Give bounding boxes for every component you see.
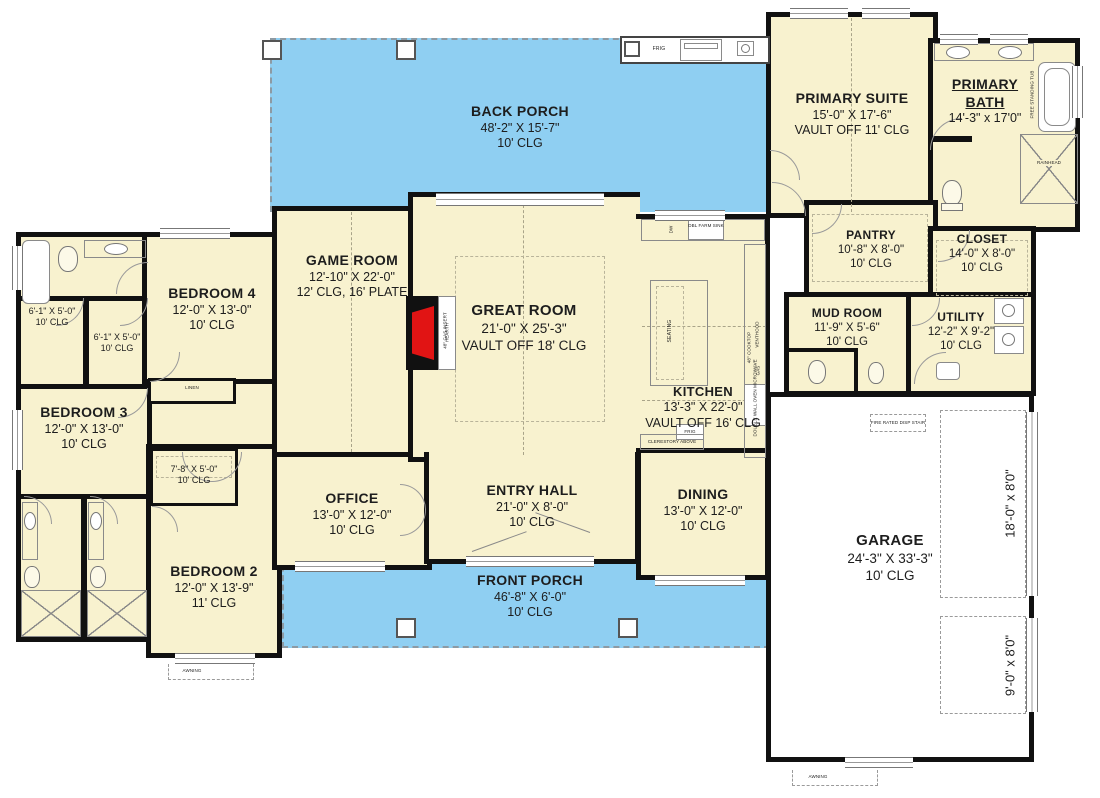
room-name: GARAGE [766,532,1014,551]
back-porch-label: BACK PORCH 48'-2" X 15'-7" 10' CLG [370,103,670,152]
garage-label: GARAGE 24'-3" X 33'-3" 10' CLG [766,532,1014,585]
cooktop-label: 48" COOKTOP [747,323,752,373]
garage-rear-door [845,757,913,768]
awning-label: AWNING [170,668,214,674]
clerestory-label: CLERESTORY ABOVE [640,439,704,445]
room-name: DINING [636,486,770,504]
office-label: OFFICE 13'-0" X 12'-0" 10' CLG [272,490,432,539]
room-name: GREAT ROOM [408,302,640,321]
room-name: UTILITY [900,310,1022,325]
window [295,561,385,572]
garage-door-9-label: 9'-0" x 8'0" [1003,611,1018,721]
shower [87,590,147,637]
window [790,8,848,19]
awning-label: AWNING [796,774,840,780]
window [160,228,230,239]
powder-wall [854,348,858,396]
porch-column-icon [624,41,640,57]
farm-sink-label: DBL FARM SINK [688,223,724,229]
window [175,653,255,664]
toilet-icon [24,566,40,588]
room-name: MUD ROOM [784,306,910,321]
disp-stair-label: FIRE RATED DISP STAIR [870,420,926,426]
rainhead-label: RAINHEAD [1024,160,1074,166]
garage-door-18 [1026,412,1038,596]
great-room-slider-window [436,193,604,206]
floor-plan: FRIG 48" GAS INSERT HEARTH D [0,0,1100,798]
room-name: PANTRY [804,228,938,243]
pantry-label: PANTRY 10'-8" X 8'-0" 10' CLG [804,228,938,272]
room-name: BEDROOM 3 [16,404,152,422]
primary-shower [1020,134,1078,204]
window [862,8,910,19]
toilet-icon [808,360,826,384]
room-name: OFFICE [272,490,432,508]
front-porch-label: FRONT PORCH 46'-8" X 6'-0" 10' CLG [380,572,680,621]
bath-sink-icon [998,46,1022,59]
room-name: BACK PORCH [370,103,670,121]
porch-column-icon [262,40,282,60]
venthood-label: VENTHOOD [755,314,760,356]
entry-hall-label: ENTRY HALL 21'-0" X 8'-0" 10' CLG [424,482,640,531]
room-linen-closet [148,378,236,404]
window [1072,66,1083,118]
bedroom-4-label: BEDROOM 4 12'-0" X 13'-0" 10' CLG [142,285,282,334]
porch-column-icon [396,40,416,60]
sink-icon [24,512,36,530]
porch-column-icon [396,618,416,638]
room-name: CLOSET [928,232,1036,247]
toilet-icon [868,362,884,384]
garage-door-9 [1026,618,1038,712]
closet-b-label: 6'-1" X 5'-0" 10' CLG [86,332,148,355]
window [12,246,23,290]
outdoor-sink-basin-icon [741,44,750,53]
dining-label: DINING 13'-0" X 12'-0" 10' CLG [636,486,770,535]
room-name: FRONT PORCH [380,572,680,590]
room-name: PRIMARY [934,76,1036,94]
linen-label: LINEN [156,385,228,391]
room-name: GAME ROOM [272,252,432,270]
outdoor-frig-label: FRIG [644,46,674,52]
room-name: PRIMARY SUITE [766,90,938,108]
toilet-icon [90,566,106,588]
freestanding-tub-inner [1044,68,1070,126]
window [990,34,1028,45]
window [655,210,725,221]
seating-label: SEATING [667,309,673,353]
room-name: KITCHEN [630,384,776,400]
bath2-vanity [88,502,104,560]
room-name: BEDROOM 2 [146,563,282,581]
closet-c-label: 7'-8" X 5'-0" 10' CLG [154,464,234,487]
kitchen-label: KITCHEN 13'-3" X 22'-0" VAULT OFF 16' CL… [630,384,776,432]
utility-sink [936,362,960,380]
great-room-label: GREAT ROOM 21'-0" X 25'-3" VAULT OFF 18'… [408,302,640,355]
room-name: BEDROOM 4 [142,285,282,303]
bath3-vanity [22,502,38,560]
primary-suite-label: PRIMARY SUITE 15'-0" X 17'-6" VAULT OFF … [766,90,938,139]
primary-bath-label: PRIMARY BATH 14'-3" x 17'0" [934,76,1036,127]
game-room-label: GAME ROOM 12'-10" X 22'-0" 12' CLG, 16' … [272,252,432,301]
room-name: ENTRY HALL [424,482,640,500]
sink-icon [90,512,102,530]
entry-door-threshold [466,556,594,567]
shower [21,590,81,637]
sink-icon [104,243,128,255]
closet-a-label: 6'-1" X 5'-0" 10' CLG [20,306,84,329]
bath-sink-icon [946,46,970,59]
bedroom-3-label: BEDROOM 3 12'-0" X 13'-0" 10' CLG [16,404,152,453]
kitchen-island [650,280,708,386]
toilet-icon [58,246,78,272]
utility-label: UTILITY 12'-2" X 9'-2" 10' CLG [900,310,1022,354]
tub [22,240,50,304]
closet-label: CLOSET 14'-0" X 8'-0" 10' CLG [928,232,1036,276]
porch-column-icon [618,618,638,638]
window [940,34,978,45]
mud-room-label: MUD ROOM 11'-9" X 5'-6" 10' CLG [784,306,910,350]
dishwasher-label: DW [669,222,674,238]
grill-lid-icon [684,43,718,49]
room-name: BATH [934,94,1036,112]
bedroom-2-label: BEDROOM 2 12'-0" X 13'-9" 11' CLG [146,563,282,612]
toilet-tank-icon [941,203,963,211]
game-room-ceiling-dash [351,212,352,452]
